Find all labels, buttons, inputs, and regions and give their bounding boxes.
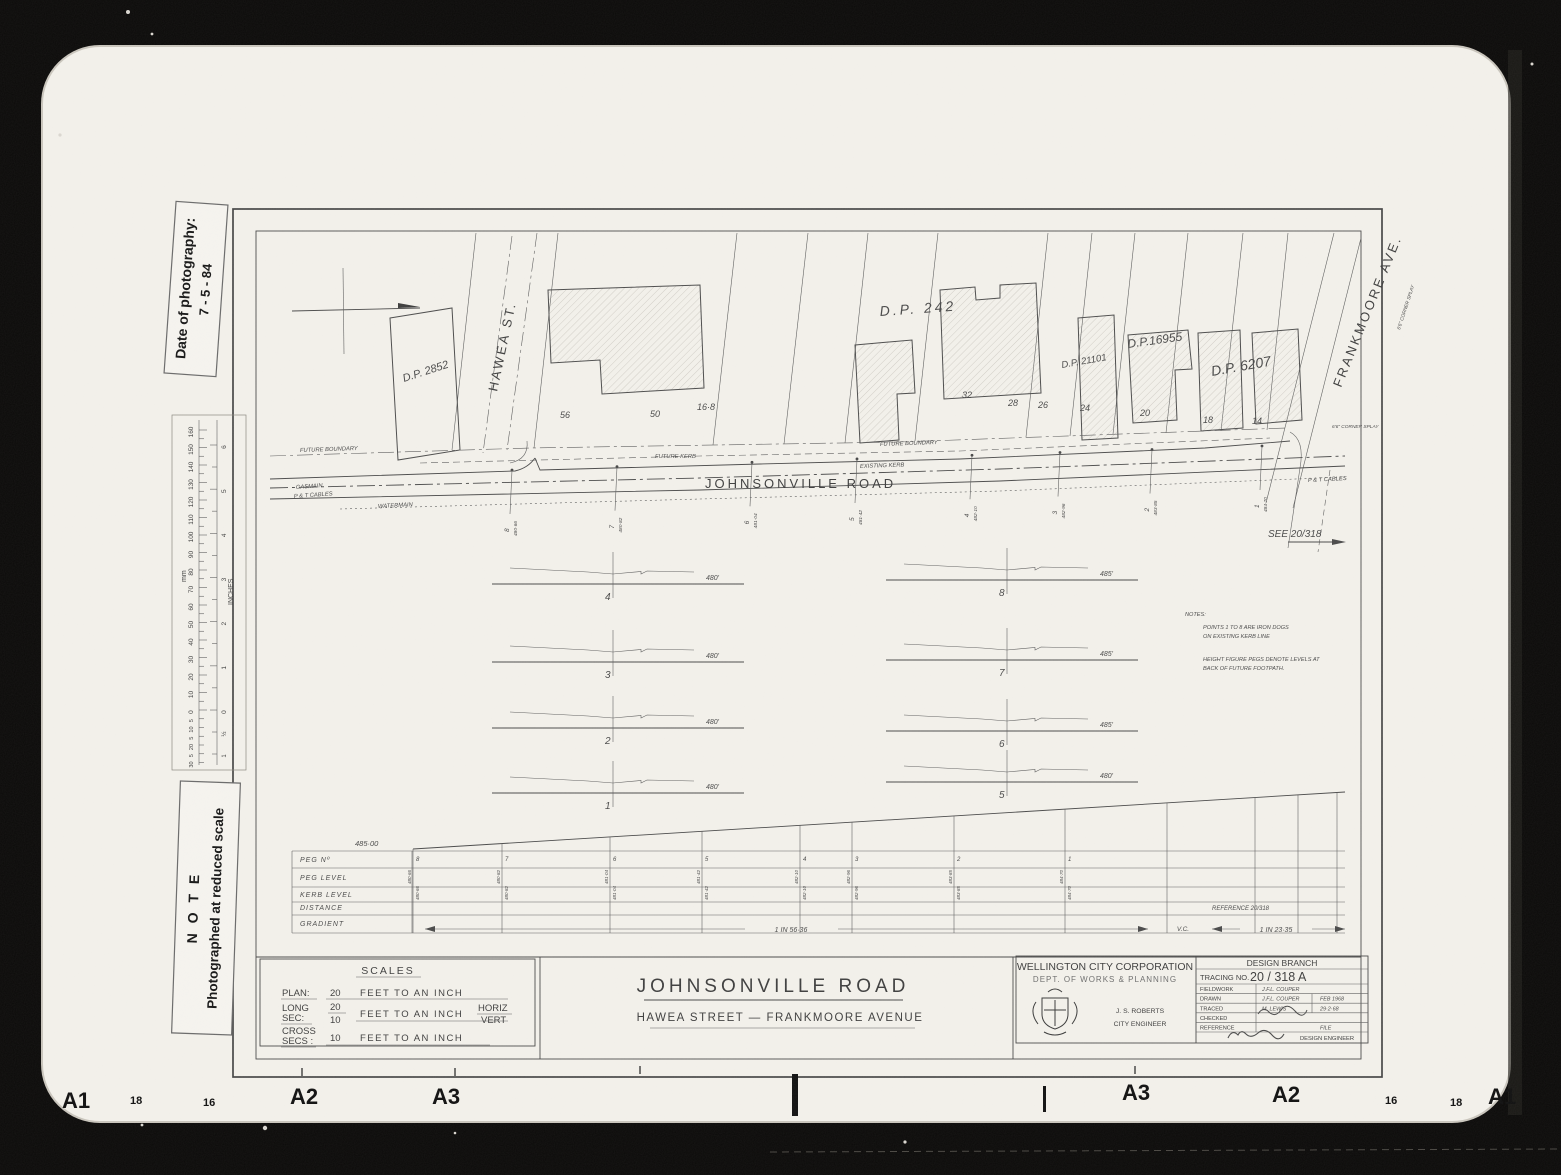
microfilm-scan: Date of photography: 7 - 5 - 84 16015014… xyxy=(0,0,1561,1175)
film-grain xyxy=(0,0,1561,1175)
scanned-plan-sheet: Date of photography: 7 - 5 - 84 16015014… xyxy=(0,0,1561,1175)
